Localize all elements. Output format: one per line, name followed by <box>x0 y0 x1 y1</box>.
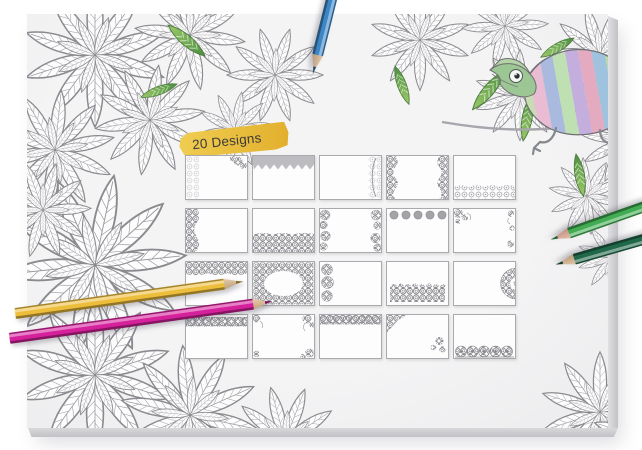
pencil-tip <box>554 257 564 270</box>
pencil-tip <box>235 276 243 288</box>
design-thumbnail-3 <box>319 155 382 200</box>
design-thumbnail-20 <box>453 314 516 359</box>
design-thumbnail-19 <box>386 314 449 359</box>
design-thumbnail-15 <box>453 261 516 306</box>
pencil-tip <box>264 296 272 308</box>
design-thumbnail-9 <box>386 208 449 253</box>
designs-grid <box>185 155 516 359</box>
design-thumbnail-16 <box>185 314 248 359</box>
design-thumbnail-1 <box>185 155 248 200</box>
design-thumbnail-5 <box>453 155 516 200</box>
design-thumbnail-7 <box>252 208 315 253</box>
pad-edge-bottom <box>28 428 618 437</box>
pencil-wood-cone <box>223 276 237 289</box>
design-thumbnail-17 <box>252 314 315 359</box>
product-showcase: 20 Designs <box>0 0 642 450</box>
design-thumbnail-10 <box>453 208 516 253</box>
pencil-wood-cone <box>252 296 266 309</box>
design-thumbnail-6 <box>185 208 248 253</box>
design-thumbnail-18 <box>319 314 382 359</box>
design-thumbnail-4 <box>386 155 449 200</box>
design-thumbnail-13 <box>319 261 382 306</box>
design-thumbnail-2 <box>252 155 315 200</box>
design-thumbnail-14 <box>386 261 449 306</box>
sketchpad: 20 Designs <box>27 14 608 428</box>
design-thumbnail-8 <box>319 208 382 253</box>
